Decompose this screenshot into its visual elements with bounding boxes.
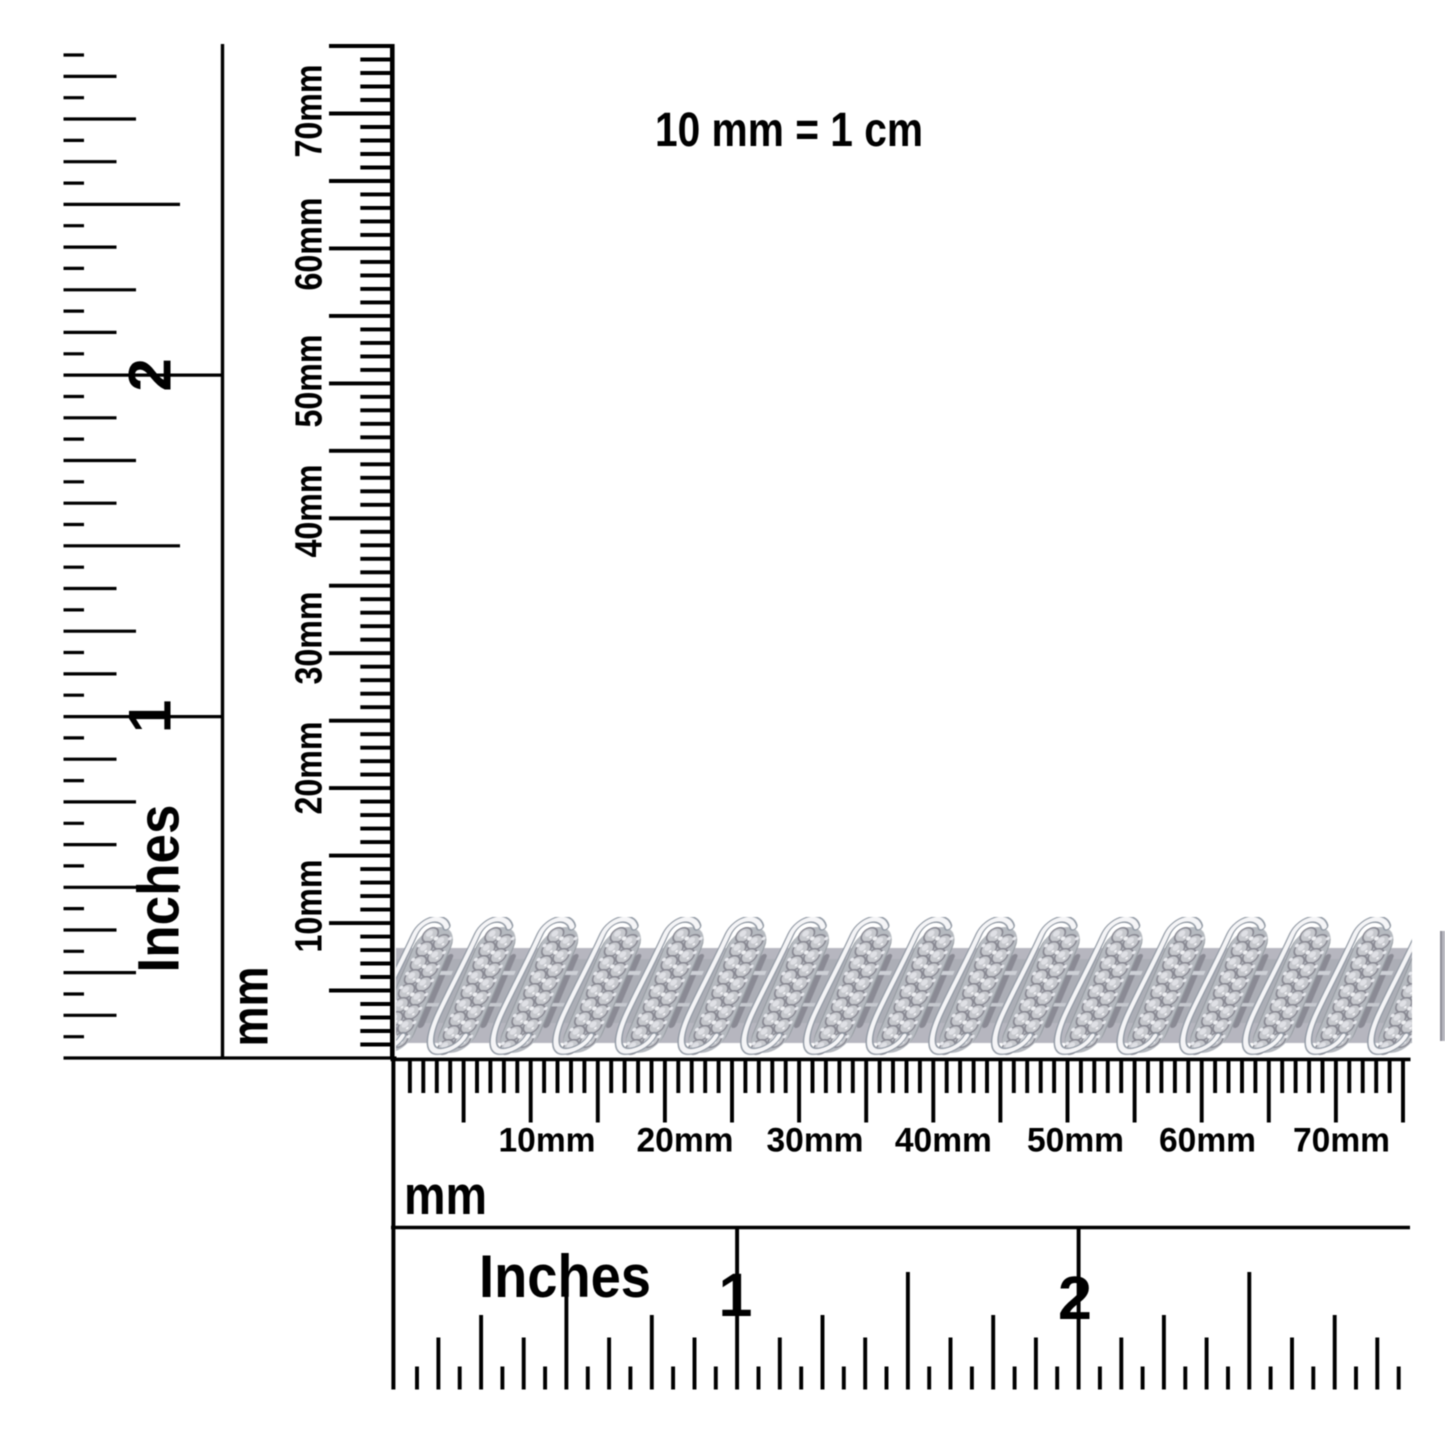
svg-text:10mm: 10mm [499,1122,596,1160]
svg-text:2: 2 [1058,1264,1092,1332]
svg-text:Inches: Inches [127,805,192,973]
svg-text:70mm: 70mm [1293,1122,1390,1160]
svg-text:50mm: 50mm [1027,1122,1124,1160]
svg-text:70mm: 70mm [289,65,331,158]
svg-text:20mm: 20mm [289,722,331,815]
svg-text:1: 1 [117,700,184,733]
svg-text:10 mm = 1 cm: 10 mm = 1 cm [655,104,923,157]
svg-text:60mm: 60mm [1159,1122,1256,1160]
svg-text:60mm: 60mm [289,198,331,291]
svg-text:mm: mm [222,967,280,1047]
svg-text:mm: mm [404,1164,487,1226]
svg-text:30mm: 30mm [767,1122,864,1160]
svg-text:30mm: 30mm [289,592,331,685]
svg-text:40mm: 40mm [895,1122,992,1160]
svg-text:1: 1 [719,1261,753,1329]
svg-text:10mm: 10mm [289,860,331,953]
svg-text:2: 2 [117,358,184,391]
svg-text:20mm: 20mm [637,1122,734,1160]
svg-text:40mm: 40mm [289,465,331,558]
svg-text:Inches: Inches [479,1243,651,1310]
svg-text:50mm: 50mm [289,335,331,428]
